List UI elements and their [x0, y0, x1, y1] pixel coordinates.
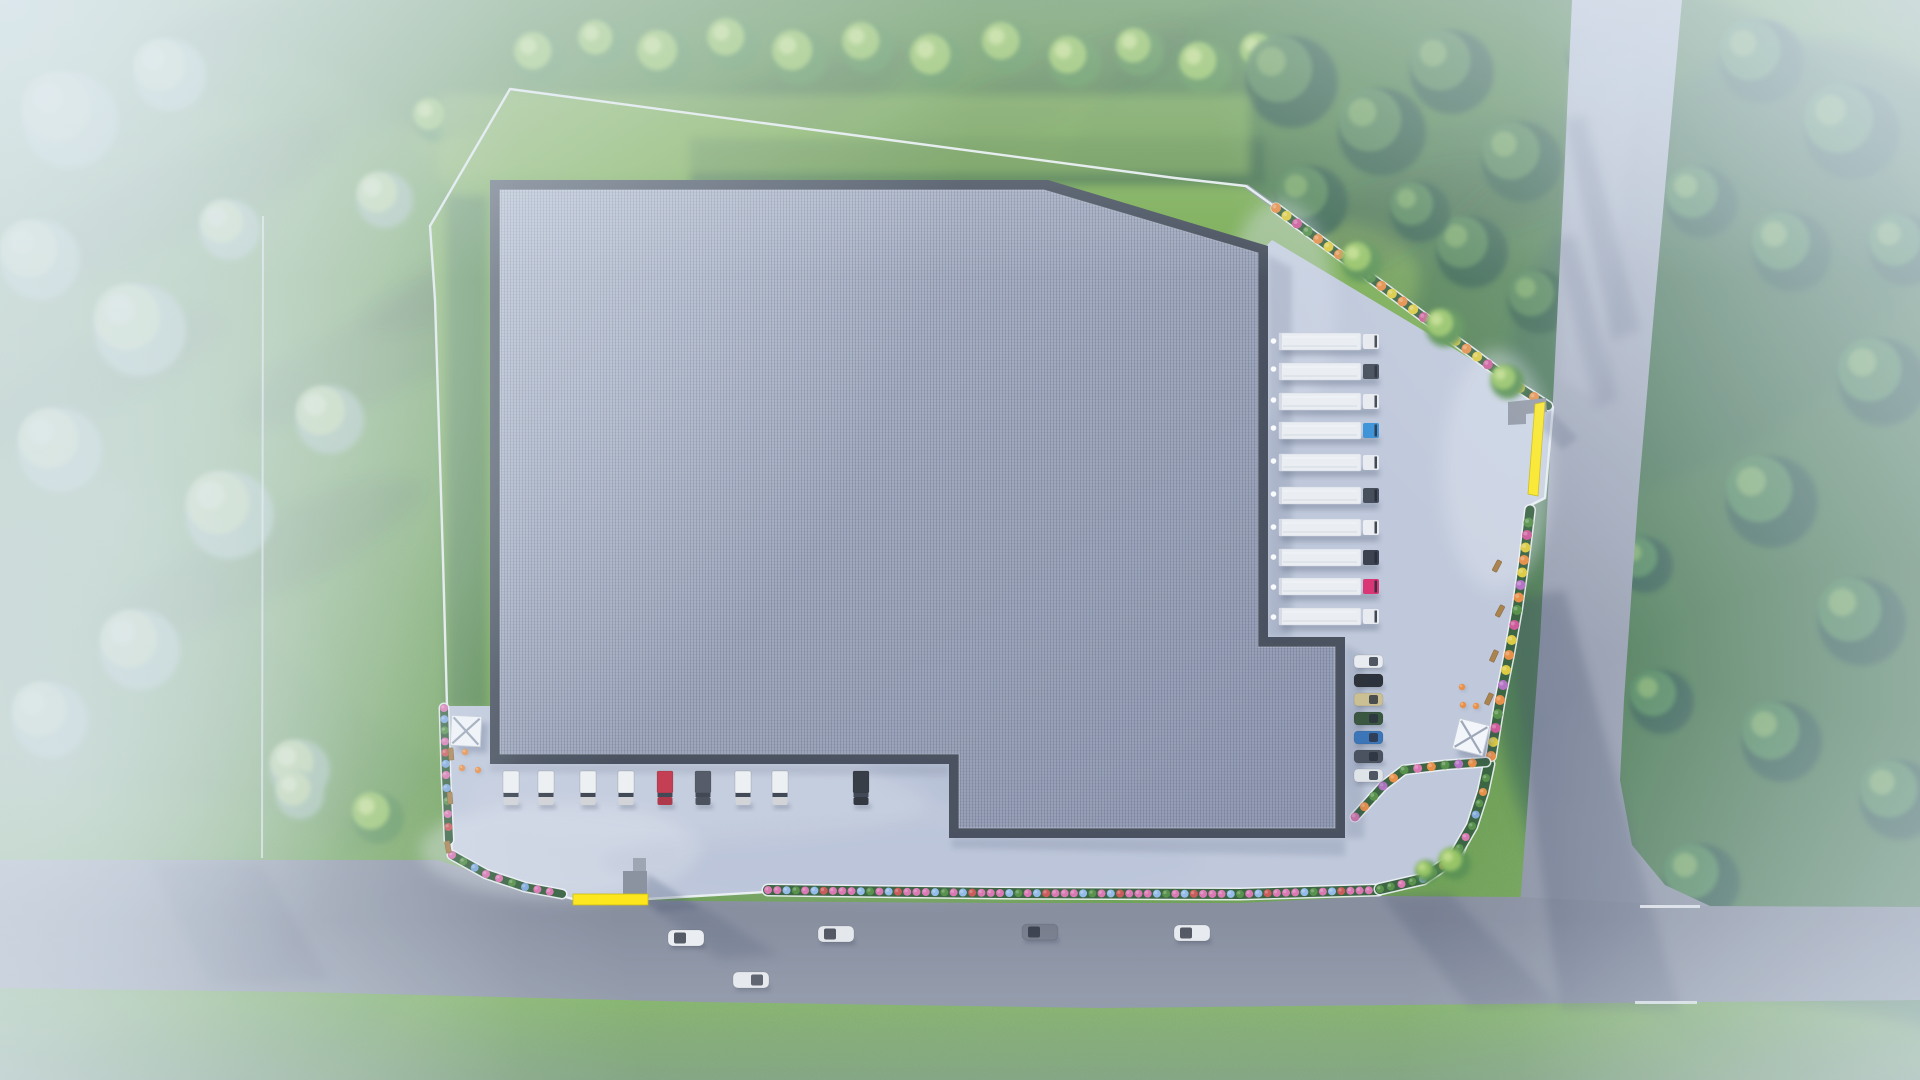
site-plan-rendering: [0, 0, 1920, 1080]
haze-layer: [0, 0, 1920, 1080]
aerial-site-render: [0, 0, 1920, 1080]
atmosphere-veil: [0, 0, 1920, 1080]
